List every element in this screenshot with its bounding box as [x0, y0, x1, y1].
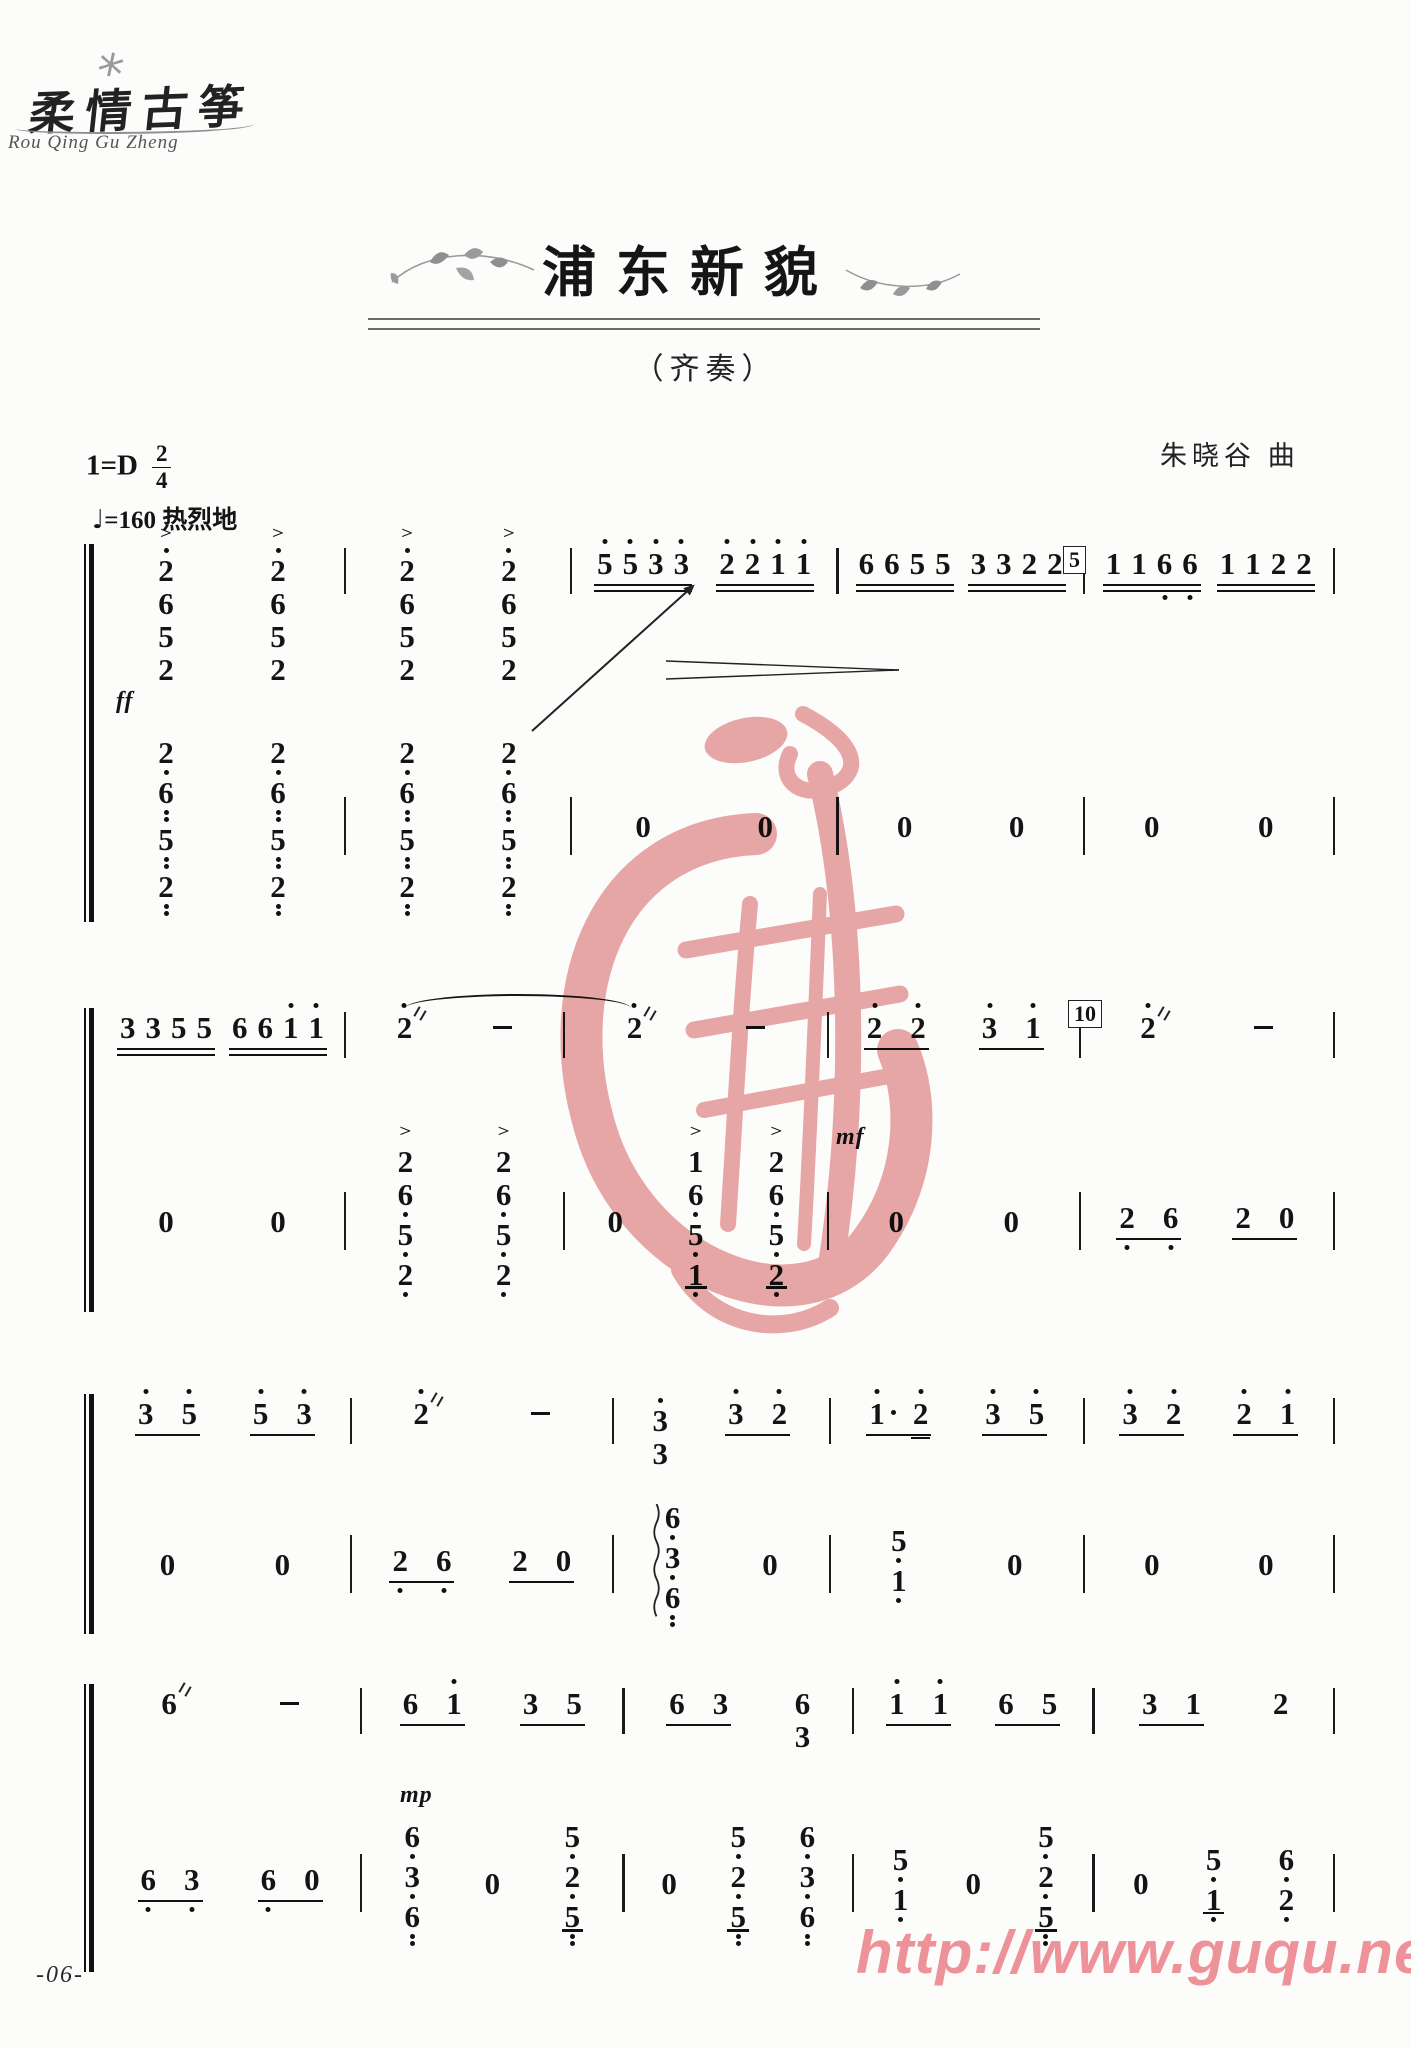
chord-note: 2	[501, 548, 517, 586]
measure: 00	[572, 732, 836, 920]
digit: 6	[884, 548, 900, 579]
watermark-url: http://www.guqu.net	[856, 1918, 1411, 1987]
digit: 3	[405, 1861, 421, 1892]
digit: 0	[1258, 1549, 1274, 1580]
chord-note: 5	[399, 824, 415, 869]
digit: 2	[1140, 1012, 1156, 1043]
digit: 2	[398, 1146, 414, 1177]
digit: 2	[496, 1259, 512, 1290]
page-number: -06-	[36, 1962, 84, 1989]
digit: 6	[258, 1012, 274, 1043]
system: >2652>2652>2652>265255332211665533221166…	[100, 548, 1335, 920]
chord-note: 2	[270, 548, 286, 586]
note: 3	[674, 548, 690, 579]
chord: >2652	[496, 1146, 512, 1297]
digit: 3	[523, 1688, 539, 1719]
measure: 00	[829, 1132, 1079, 1310]
digit: 5	[891, 1525, 907, 1556]
beam-group: 35	[135, 1398, 200, 1436]
accent-icon: >	[401, 524, 413, 544]
chord-note: 2	[270, 737, 286, 775]
note: 3	[713, 1688, 729, 1719]
measure: 00	[839, 732, 1083, 920]
chord: 2652	[399, 737, 415, 916]
digit: 2	[910, 1012, 926, 1043]
chord-note: 6	[398, 1179, 414, 1217]
measure: 3332	[614, 1398, 829, 1482]
chord-note: 2	[501, 871, 517, 916]
rest: 0	[1279, 1202, 1295, 1233]
barline	[1333, 1012, 1335, 1058]
digit: 2	[270, 871, 286, 902]
rest: 0	[1133, 1868, 1149, 1899]
digit: 0	[635, 811, 651, 842]
tremolo-icon	[646, 1006, 662, 1022]
chord: 636	[800, 1821, 816, 1946]
digit: 3	[728, 1398, 744, 1429]
digit: 5	[158, 621, 174, 652]
chord-note: 1	[688, 1259, 704, 1297]
digit: 2	[158, 871, 174, 902]
chord-note: 6	[270, 777, 286, 822]
chord-beam	[727, 1929, 749, 1932]
octave-dots-above	[918, 1389, 923, 1394]
digit: 6	[158, 777, 174, 808]
chord-note: 2	[398, 1146, 414, 1177]
barline	[1333, 1398, 1335, 1444]
digit: 0	[661, 1868, 677, 1899]
beam-group: 1122	[1217, 548, 1315, 586]
beam-group: 65	[995, 1688, 1060, 1726]
octave-dots-above	[1128, 1389, 1133, 1394]
digit: 6	[270, 588, 286, 619]
octave-dots-above	[258, 1389, 263, 1394]
chord-note: 1	[688, 1146, 704, 1177]
digit: 2	[399, 871, 415, 902]
slur-arc	[405, 994, 631, 1018]
chord: 2652	[158, 737, 174, 916]
accent-icon: >	[498, 1121, 510, 1141]
note: 6	[141, 1864, 157, 1895]
octave-dots-below	[1188, 595, 1193, 600]
chord-note: 2	[158, 548, 174, 586]
digit: 6	[665, 1582, 681, 1613]
digit: 0	[275, 1549, 291, 1580]
dash-note	[1254, 1026, 1273, 1029]
digit: 6	[405, 1821, 421, 1852]
chord-note: 5	[1206, 1844, 1222, 1882]
note: 3	[184, 1864, 200, 1895]
digit: 1	[1206, 1884, 1222, 1915]
beam-group: 61	[400, 1688, 465, 1726]
octave-dots-above	[1034, 1389, 1039, 1394]
stave-lower: 002620636051000	[100, 1496, 1335, 1632]
tempo-expression: 热烈地	[162, 507, 237, 534]
note: 2	[913, 1398, 929, 1429]
chord-note: 5	[270, 824, 286, 869]
note: 3	[1142, 1688, 1158, 1719]
digit: 2	[1047, 548, 1063, 579]
digit: 2	[745, 548, 761, 579]
chord: >2652	[398, 1146, 414, 1297]
digit: 2	[1022, 548, 1038, 579]
chord: 51	[891, 1525, 907, 1603]
octave-dots-above	[1171, 1389, 1176, 1394]
measure: 6	[100, 1688, 360, 1782]
tempo-value: =160	[104, 507, 156, 534]
note: 6	[1163, 1202, 1179, 1233]
dynamic-marking: ff	[116, 688, 134, 715]
octave-dots-above	[875, 1389, 880, 1394]
digit: 6	[398, 1179, 414, 1210]
digit: 5	[253, 1398, 269, 1429]
digit: 6	[688, 1179, 704, 1210]
octave-dots-above	[452, 1679, 457, 1684]
digit: 2	[270, 654, 286, 685]
digit: 5	[565, 1901, 581, 1932]
chord-note: 6	[795, 1688, 811, 1719]
measure: 2	[352, 1398, 612, 1482]
series-logo-english: Rou Qing Gu Zheng	[8, 132, 179, 154]
chord-note: 2	[730, 1861, 746, 1899]
digit: 0	[965, 1868, 981, 1899]
chord-note: 6	[800, 1901, 816, 1946]
digit: 2	[719, 548, 735, 579]
chord-note: 5	[565, 1901, 581, 1946]
measure: 2620	[1081, 1132, 1333, 1310]
digit: 1	[869, 1398, 885, 1429]
measure: 2	[565, 1012, 827, 1118]
digit: 2	[1119, 1202, 1135, 1233]
digit: 1	[446, 1688, 462, 1719]
chord-note: 6	[1279, 1844, 1295, 1882]
note: 3	[523, 1688, 539, 1719]
octave-dots-above	[776, 539, 781, 544]
note: 1	[1131, 548, 1147, 579]
digit: 2	[399, 654, 415, 685]
note: 2	[1047, 548, 1063, 579]
chord-note: 2	[769, 1259, 785, 1297]
digit: 2	[769, 1259, 785, 1290]
rest: 0	[1258, 1549, 1274, 1580]
tremolo-icon	[181, 1682, 197, 1698]
chord-beam	[1203, 1912, 1225, 1915]
octave-dots-above	[602, 539, 607, 544]
digit: 5	[893, 1844, 909, 1875]
digit: 5	[398, 1219, 414, 1250]
note: 3	[296, 1398, 312, 1429]
beam-group: 21	[1233, 1398, 1298, 1436]
note: 2	[413, 1398, 429, 1429]
digit: 3	[800, 1861, 816, 1892]
chord: 525	[565, 1821, 581, 1946]
note: 1	[1245, 548, 1261, 579]
digit: 6	[232, 1012, 248, 1043]
digit: 1	[1106, 548, 1122, 579]
digit: 5	[399, 621, 415, 652]
chord: 62	[1279, 1844, 1295, 1922]
digit: 3	[665, 1542, 681, 1573]
beam-group: 20	[509, 1545, 574, 1583]
measure: 26522652	[346, 732, 570, 920]
digit: 0	[556, 1545, 572, 1576]
chord-note: 1	[1206, 1884, 1222, 1922]
octave-dots-above	[288, 1003, 293, 1008]
rest: 0	[160, 1549, 176, 1580]
beam-group: 6655	[856, 548, 954, 586]
digit: 1	[1280, 1398, 1296, 1429]
system-bracket	[84, 1008, 95, 1312]
digit: 0	[1007, 1549, 1023, 1580]
note: 6	[669, 1688, 685, 1719]
digit: 1	[1025, 1012, 1041, 1043]
beam-group: 31	[979, 1012, 1044, 1050]
arpeggio-icon	[652, 1504, 661, 1621]
chord-note: 5	[1038, 1821, 1054, 1859]
beam-group: 22	[864, 1012, 929, 1050]
chord-note: 5	[496, 1219, 512, 1257]
measure: 0>1651>2652	[565, 1132, 827, 1310]
chord-note: 2	[399, 871, 415, 916]
measure: 00	[100, 1496, 350, 1632]
digit: 0	[897, 811, 913, 842]
note: 3	[996, 548, 1012, 579]
beam-group: 11	[886, 1688, 951, 1726]
note: 2	[1296, 548, 1312, 579]
chord-note: 2	[1279, 1884, 1295, 1922]
note: 3	[120, 1012, 136, 1043]
chord-note: 2	[399, 654, 415, 685]
digit: 2	[1235, 1202, 1251, 1233]
note: 2	[719, 548, 735, 579]
octave-dots-above	[750, 539, 755, 544]
vine-decoration-left	[386, 238, 538, 298]
measure: 1235	[831, 1398, 1083, 1482]
note: 2	[392, 1545, 408, 1576]
chord-note: 6	[405, 1901, 421, 1946]
octave-dots-below	[398, 1588, 403, 1593]
measure: >2652>2652	[346, 548, 570, 718]
chord-note: 6	[405, 1821, 421, 1859]
chord: >1651	[688, 1146, 704, 1297]
chord: 636	[665, 1502, 681, 1627]
digit: 3	[652, 1438, 668, 1469]
rest: 0	[635, 811, 651, 842]
digit: 1	[283, 1012, 299, 1043]
octave-dots-below	[1168, 1245, 1173, 1250]
digit: 2	[1279, 1884, 1295, 1915]
chord-beam	[685, 1286, 707, 1289]
digit: 6	[665, 1502, 681, 1533]
beam-group: 12	[866, 1398, 931, 1436]
sheet-music-page: * 柔情古筝 Rou Qing Gu Zheng 浦东新貌 （齐奏） 1=D24…	[0, 0, 1411, 2048]
measure: 2	[346, 1012, 563, 1118]
note: 1	[770, 548, 786, 579]
chord-note: 2	[769, 1146, 785, 1177]
note: 1	[1025, 1012, 1041, 1043]
time-signature: 24	[152, 442, 172, 493]
digit: 5	[623, 548, 639, 579]
chord-note: 6	[158, 777, 174, 822]
chord-note: 5	[399, 621, 415, 652]
page-title: 浦东新貌	[542, 228, 838, 307]
measure: 1165	[854, 1688, 1092, 1782]
digit: 2	[1038, 1861, 1054, 1892]
measure: 6360	[100, 1796, 360, 1970]
measure: 2620	[352, 1496, 612, 1632]
digit: 1	[688, 1259, 704, 1290]
digit: 0	[304, 1864, 320, 1895]
chord-note: 5	[565, 1821, 581, 1859]
digit: 2	[413, 1398, 429, 1429]
note: 1	[869, 1398, 885, 1429]
measure: 2	[1081, 1012, 1333, 1118]
digit: 2	[1273, 1688, 1289, 1719]
system: 33556611222231210mf00>2652>26520>1651>26…	[100, 1012, 1335, 1310]
digit: 5	[496, 1219, 512, 1250]
digit: 6	[800, 1821, 816, 1852]
chord-note: 6	[501, 588, 517, 619]
octave-dots-above	[653, 539, 658, 544]
digit: 1	[893, 1884, 909, 1915]
note: 6	[1182, 548, 1198, 579]
chord-note: 2	[158, 654, 174, 685]
chord-note: 6	[496, 1179, 512, 1217]
rest: 0	[965, 1868, 981, 1899]
note: 2	[1119, 1202, 1135, 1233]
digit: 0	[1144, 1549, 1160, 1580]
chord: >2652	[158, 548, 174, 685]
octave-dots-above	[777, 1389, 782, 1394]
digit: 0	[485, 1868, 501, 1899]
chord-note: 5	[158, 621, 174, 652]
accent-icon: >	[272, 524, 284, 544]
digit: 2	[501, 737, 517, 768]
rest: 0	[304, 1864, 320, 1895]
note: 6	[261, 1864, 277, 1895]
octave-dots-above	[1031, 1003, 1036, 1008]
octave-dots-above	[987, 1003, 992, 1008]
chord-note: 5	[769, 1219, 785, 1257]
note: 3	[985, 1398, 1001, 1429]
chord: 33	[652, 1398, 668, 1469]
octave-dots-above	[938, 1679, 943, 1684]
measure: 11661122	[1085, 548, 1333, 718]
digit: 3	[138, 1398, 154, 1429]
digit: 6	[161, 1688, 177, 1719]
digit: 2	[769, 1146, 785, 1177]
digit: 2	[1166, 1398, 1182, 1429]
octave-dots-above	[872, 1003, 877, 1008]
note: 2	[1236, 1398, 1252, 1429]
key-label: 1=D	[86, 449, 138, 481]
digit: 3	[1142, 1688, 1158, 1719]
beam-group: 32	[1119, 1398, 1184, 1436]
rest: 0	[762, 1549, 778, 1580]
note: 6	[884, 548, 900, 579]
digit: 5	[910, 548, 926, 579]
digit: 1	[1220, 548, 1236, 579]
digit: 0	[607, 1206, 623, 1237]
system-bracket	[84, 1394, 95, 1634]
chord-note: 3	[652, 1398, 668, 1436]
digit: 6	[261, 1864, 277, 1895]
digit: 6	[1279, 1844, 1295, 1875]
note: 2	[1022, 548, 1038, 579]
note: 2	[1166, 1398, 1182, 1429]
digit: 3	[982, 1012, 998, 1043]
chord-note: 6	[399, 588, 415, 619]
digit: 5	[597, 548, 613, 579]
digit: 6	[1182, 548, 1198, 579]
note: 3	[138, 1398, 154, 1429]
digit: 0	[160, 1549, 176, 1580]
decrescendo-hairpin	[666, 660, 901, 680]
digit: 2	[1296, 548, 1312, 579]
rest: 0	[158, 1206, 174, 1237]
note: 6	[859, 548, 875, 579]
chord-note: 3	[405, 1861, 421, 1899]
digit: 0	[1133, 1868, 1149, 1899]
chord-note: 6	[158, 588, 174, 619]
digit: 6	[998, 1688, 1014, 1719]
digit: 3	[296, 1398, 312, 1429]
digit: 5	[181, 1398, 197, 1429]
digit: 6	[405, 1901, 421, 1932]
measure: 6363	[625, 1688, 852, 1782]
beam-group: 35	[982, 1398, 1047, 1436]
barline	[1333, 1192, 1335, 1250]
digit: 5	[566, 1688, 582, 1719]
chord-note: 1	[891, 1565, 907, 1603]
chord: 2652	[270, 737, 286, 916]
chord-note: 6	[665, 1582, 681, 1627]
rest: 0	[758, 811, 774, 842]
octave-dots-above	[1285, 1389, 1290, 1394]
barline	[1333, 1535, 1335, 1593]
octave-dots-above	[679, 539, 684, 544]
digit: 3	[652, 1405, 668, 1436]
note: 6	[1157, 548, 1173, 579]
rest: 0	[1258, 811, 1274, 842]
chord: >2652	[769, 1146, 785, 1297]
stave-upper: 33556611222231210mf	[100, 1012, 1335, 1118]
digit: 3	[795, 1721, 811, 1752]
digit: 5	[399, 824, 415, 855]
chord-note: 6	[688, 1179, 704, 1217]
system: 35532333212353221002620636051000	[100, 1398, 1335, 1632]
chord: 51	[893, 1844, 909, 1922]
chord-note: 5	[270, 621, 286, 652]
accent-icon: >	[160, 524, 172, 544]
rest: 0	[889, 1206, 905, 1237]
digit: 1	[309, 1012, 325, 1043]
octave-dots-above	[725, 539, 730, 544]
digit: 0	[1279, 1202, 1295, 1233]
beam-group: 2211	[716, 548, 814, 586]
octave-dots-above	[990, 1389, 995, 1394]
octave-dots-above	[187, 1389, 192, 1394]
digit: 0	[1144, 811, 1160, 842]
digit: 1	[1185, 1688, 1201, 1719]
measure: 00	[1085, 732, 1333, 920]
digit: 6	[501, 588, 517, 619]
note: 5	[623, 548, 639, 579]
measure: 510	[831, 1496, 1083, 1632]
beam-group: 6611	[229, 1012, 327, 1050]
measure-number-box: 5	[1063, 546, 1086, 574]
note: 2	[745, 548, 761, 579]
